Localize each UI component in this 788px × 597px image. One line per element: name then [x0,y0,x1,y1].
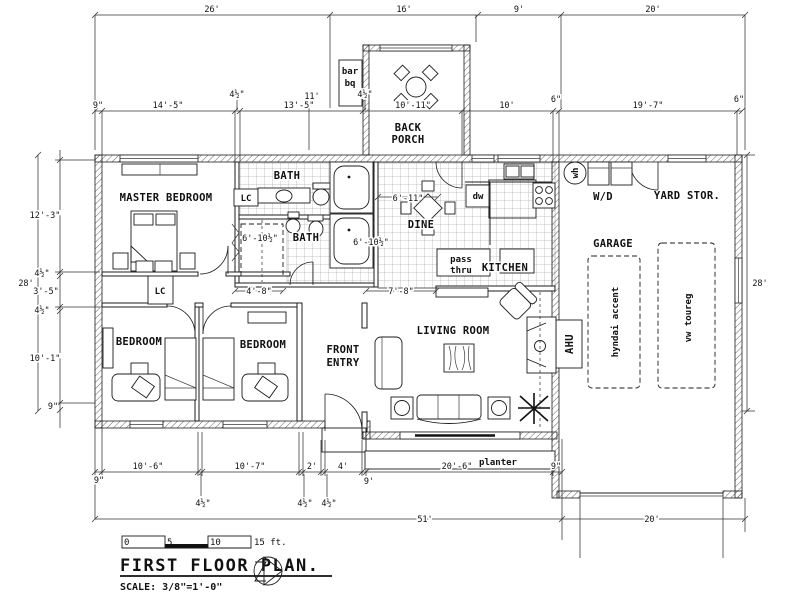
label-wh: wh [571,168,581,179]
dim-10-11: 10'-11" [395,101,431,111]
scale-bar: 0 5 10 15 ft. [122,536,287,548]
label-wd: W/D [593,191,613,203]
fireplace [527,317,556,373]
dim-4h-row2-left: 4½" [229,89,244,100]
window-bedroom-right [223,421,267,428]
dim-9in-row2: 9" [93,101,103,111]
floor-plan-drawing: 26' 16' 9' 20' 9" 14'-5" 4½" 13'-5" 11' … [0,0,788,597]
label-master-bedroom: MASTER BEDROOM [120,192,213,204]
window-bedroom-left [130,421,163,428]
label-bath-bottom: BATH [293,232,320,244]
dim-9ft-top: 9' [514,5,524,15]
label-planter: planter [479,458,518,468]
dim-dine-6-10h: 6'-10½" [353,237,389,248]
dim-12-3: 12'-3" [30,211,61,221]
dim-4h-bot-3: 4½" [321,498,336,509]
label-bar: bar [342,67,359,77]
scalebar-15: 15 ft. [254,538,287,548]
dim-4h-row2-right: 4½" [357,89,372,100]
dim-4h-bot-2: 4½" [297,498,312,509]
scalebar-5: 5 [167,538,172,548]
label-back-porch-2: PORCH [391,134,424,146]
label-pass: pass [450,255,472,265]
scalebar-0: 0 [124,538,129,548]
dim-9in-bot-right: 9" [551,462,561,472]
label-front: FRONT [326,344,359,356]
dim-11ft: 11' [304,92,319,102]
dim-10-7: 10'-7" [235,462,266,472]
dim-10-1: 10'-1" [30,354,61,364]
dim-13-5: 13'-5" [284,101,315,111]
label-bedroom-left: BEDROOM [116,336,162,348]
label-entry: ENTRY [326,357,359,369]
window-garage-right [735,258,742,303]
window-porch-top [380,45,452,51]
back-porch-furniture [339,52,451,123]
dim-2ft: 2' [307,462,317,472]
living-room-furniture [375,281,556,430]
dim-right: 28' [742,152,768,414]
floor-plan-sheet: 26' 16' 9' 20' 9" 14'-5" 4½" 13'-5" 11' … [0,0,788,597]
label-thru: thru [450,266,472,276]
dim-4h-left-bot: 4½" [34,305,49,316]
dim-51ft: 51' [417,515,432,525]
label-bq: bq [345,79,356,89]
yardstor-door [630,162,658,190]
window-dine-top [472,155,494,162]
dim-10-6: 10'-6" [133,462,164,472]
front-door [325,394,362,431]
label-back-porch-1: BACK [395,122,422,134]
scalebar-10: 10 [210,538,221,548]
plant [518,393,550,424]
label-bedroom-right: BEDROOM [240,339,286,351]
bedroom-left-door [167,306,195,334]
dim-9ft-bot: 9' [364,477,374,487]
dim-16ft: 16' [396,5,411,15]
window-living-front [400,432,520,439]
label-car-right: vw toureg [684,294,694,343]
label-bath-top: BATH [274,170,301,182]
dim-3-5: 3'-5" [33,287,59,297]
label-lc-hall: LC [155,287,166,297]
bedroom-right-furniture [203,312,288,401]
label-dw: dw [473,192,484,202]
dim-dine-6-11: 6'-11" [393,194,424,204]
label-car-left: hyndai accent [610,287,621,357]
master-door [200,246,228,274]
window-kitchen-top [498,155,540,162]
title-block: 0 5 10 15 ft. FIRST FLOOR PLAN. SCALE: 3… [120,536,332,593]
sheet-scale: SCALE: 3/8"=1'-0" [120,582,222,593]
window-master-top [120,155,198,162]
dim-hall-7-8: 7'-8" [388,287,414,297]
dim-20ft-bot: 20' [644,515,659,525]
window-yardstor-top [668,155,706,162]
label-yard-stor: YARD STOR. [654,190,720,202]
label-ahu: AHU [564,334,576,354]
dim-19-7: 19'-7" [633,101,664,111]
label-garage: GARAGE [593,238,633,250]
label-kitchen: KITCHEN [482,262,528,274]
dim-20-6: 20'-6" [442,462,473,472]
dim-10ft: 10' [499,101,514,111]
dim-4h-left-top: 4½" [34,268,49,279]
label-lc-bath: LC [241,194,252,204]
dim-closet-4-8: 4'-8" [246,287,272,297]
label-dine: DINE [408,219,435,231]
dim-28ft-right: 28' [752,279,767,289]
dim-28ft-left: 28' [18,279,33,289]
dim-6in-right: 6" [734,95,744,105]
label-living-room: LIVING ROOM [417,325,490,337]
dim-9in-bot-left: 9" [94,476,104,486]
dim-4h-bot-1: 4½" [195,498,210,509]
dim-6in-left: 6" [551,95,561,105]
dim-14-5: 14'-5" [153,101,184,111]
dim-20ft-top: 20' [645,5,660,15]
sheet-title: FIRST FLOOR PLAN. [120,556,320,576]
dim-4ft: 4' [338,462,348,472]
dim-26ft: 26' [204,5,219,15]
master-bedroom-furniture [113,164,197,272]
bedroom-right-door [203,306,231,334]
dim-left: 28' 12'-3" 4½" 3'-5" 4½" 10'-1" 9" [18,150,100,428]
dim-closet-6-10h: 6'-10½" [242,233,278,244]
dim-9in-left: 9" [48,402,58,412]
garage-contents [556,243,723,496]
